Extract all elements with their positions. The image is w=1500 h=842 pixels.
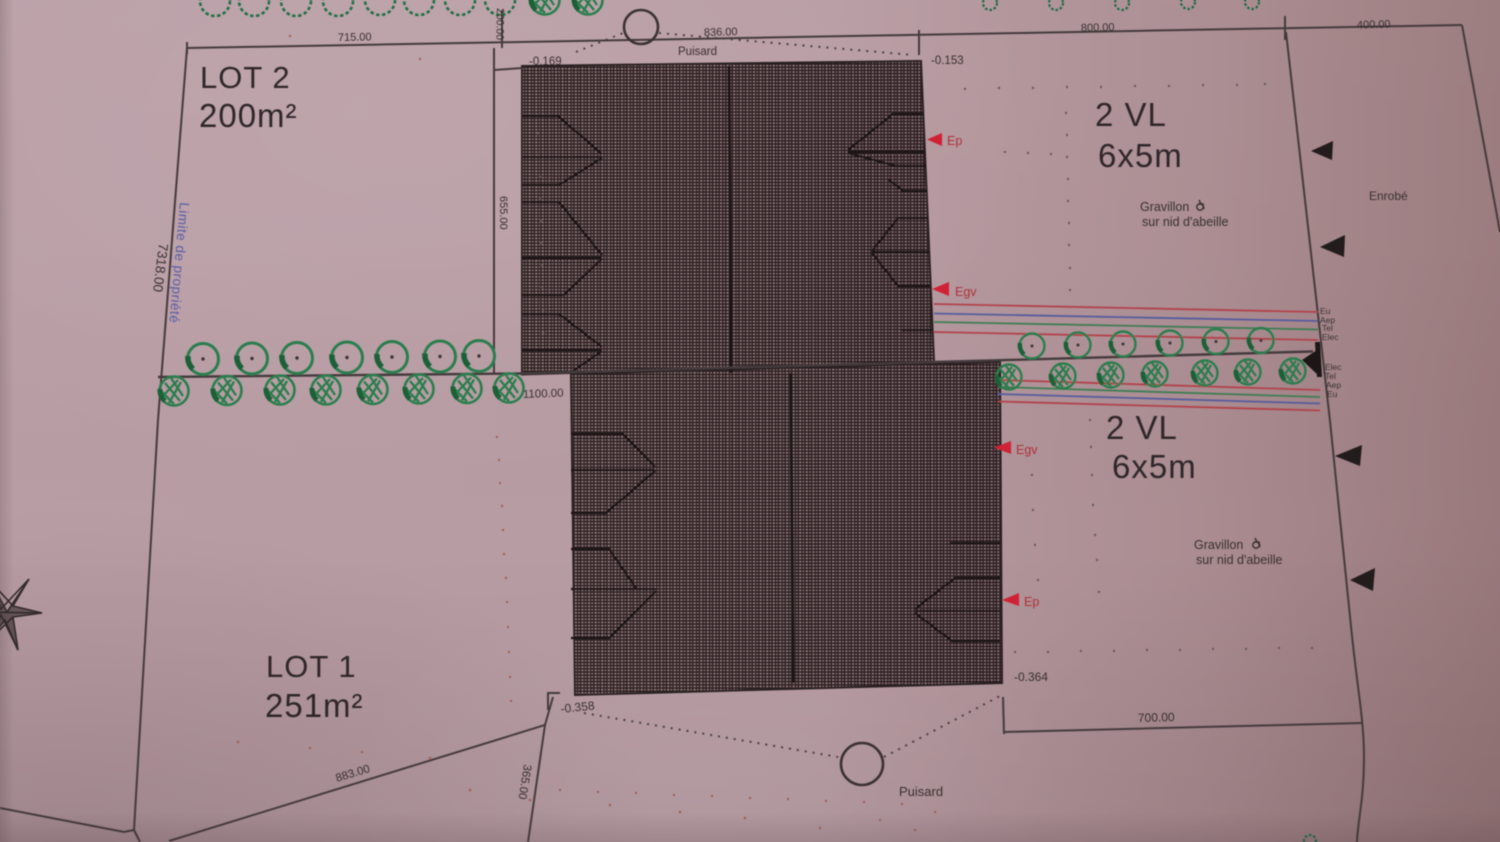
svg-text:-0.364: -0.364 (1014, 670, 1048, 684)
svg-text:LOT 2: LOT 2 (200, 60, 291, 95)
svg-text:Puisard: Puisard (678, 46, 717, 58)
svg-text:800.00: 800.00 (1081, 22, 1115, 35)
svg-text:Egv: Egv (955, 285, 977, 299)
svg-text:Egv: Egv (1016, 443, 1038, 457)
svg-text:1100.00: 1100.00 (523, 388, 564, 401)
svg-text:Eu: Eu (1327, 389, 1338, 399)
svg-text:Gravillon: Gravillon (1140, 200, 1189, 214)
svg-text:-0.153: -0.153 (931, 55, 964, 67)
svg-text:Puisard: Puisard (899, 784, 943, 799)
svg-text:2 VL: 2 VL (1095, 96, 1167, 133)
svg-text:700.00: 700.00 (1138, 710, 1175, 725)
svg-text:Elec: Elec (1322, 332, 1339, 342)
svg-text:sur nid d'abeille: sur nid d'abeille (1196, 553, 1283, 567)
svg-text:Ep: Ep (947, 134, 962, 148)
svg-text:LOT 1: LOT 1 (266, 649, 357, 684)
svg-text:Gravillon: Gravillon (1194, 538, 1243, 552)
svg-text:400.00: 400.00 (1357, 19, 1391, 32)
svg-text:Ep: Ep (1024, 595, 1039, 609)
svg-text:sur nid d'abeille: sur nid d'abeille (1142, 215, 1229, 229)
svg-text:200.00: 200.00 (493, 8, 506, 40)
svg-text:200m²: 200m² (199, 97, 298, 134)
svg-text:Enrobé: Enrobé (1369, 189, 1408, 203)
svg-text:251m²: 251m² (265, 687, 364, 724)
svg-text:-0.169: -0.169 (529, 56, 562, 68)
svg-text:2 VL: 2 VL (1106, 409, 1178, 446)
svg-text:655.00: 655.00 (497, 196, 509, 230)
svg-text:715.00: 715.00 (338, 31, 372, 44)
svg-text:836.00: 836.00 (704, 26, 738, 39)
svg-text:6x5m: 6x5m (1112, 448, 1197, 485)
svg-text:6x5m: 6x5m (1098, 137, 1183, 174)
